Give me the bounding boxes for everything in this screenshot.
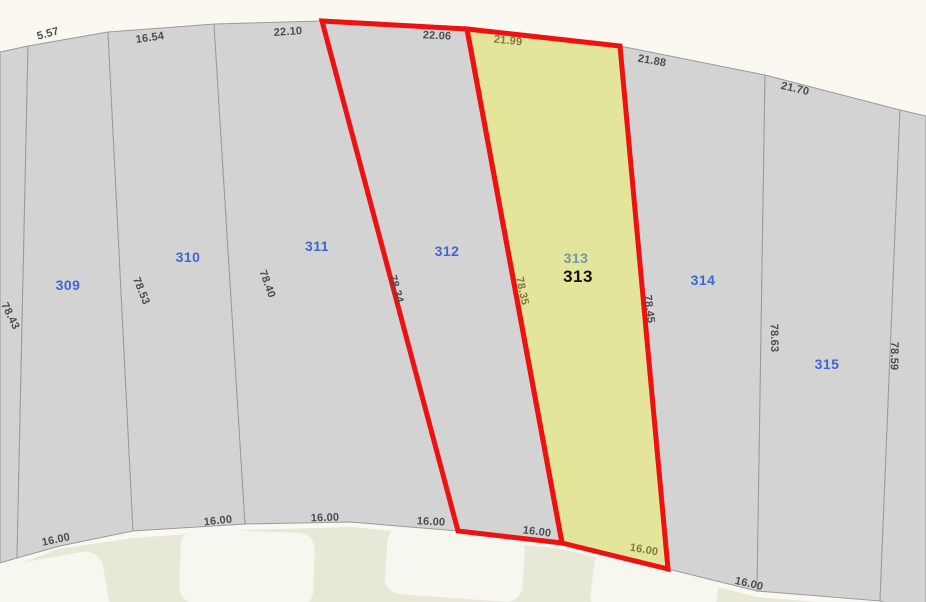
- parcel-315-shape[interactable]: [757, 75, 900, 601]
- parcel-map-canvas[interactable]: [0, 0, 926, 602]
- road-blob: [179, 529, 316, 602]
- parcel-map-viewport[interactable]: 5.5716.5422.1022.0621.9921.8821.7078.437…: [0, 0, 926, 602]
